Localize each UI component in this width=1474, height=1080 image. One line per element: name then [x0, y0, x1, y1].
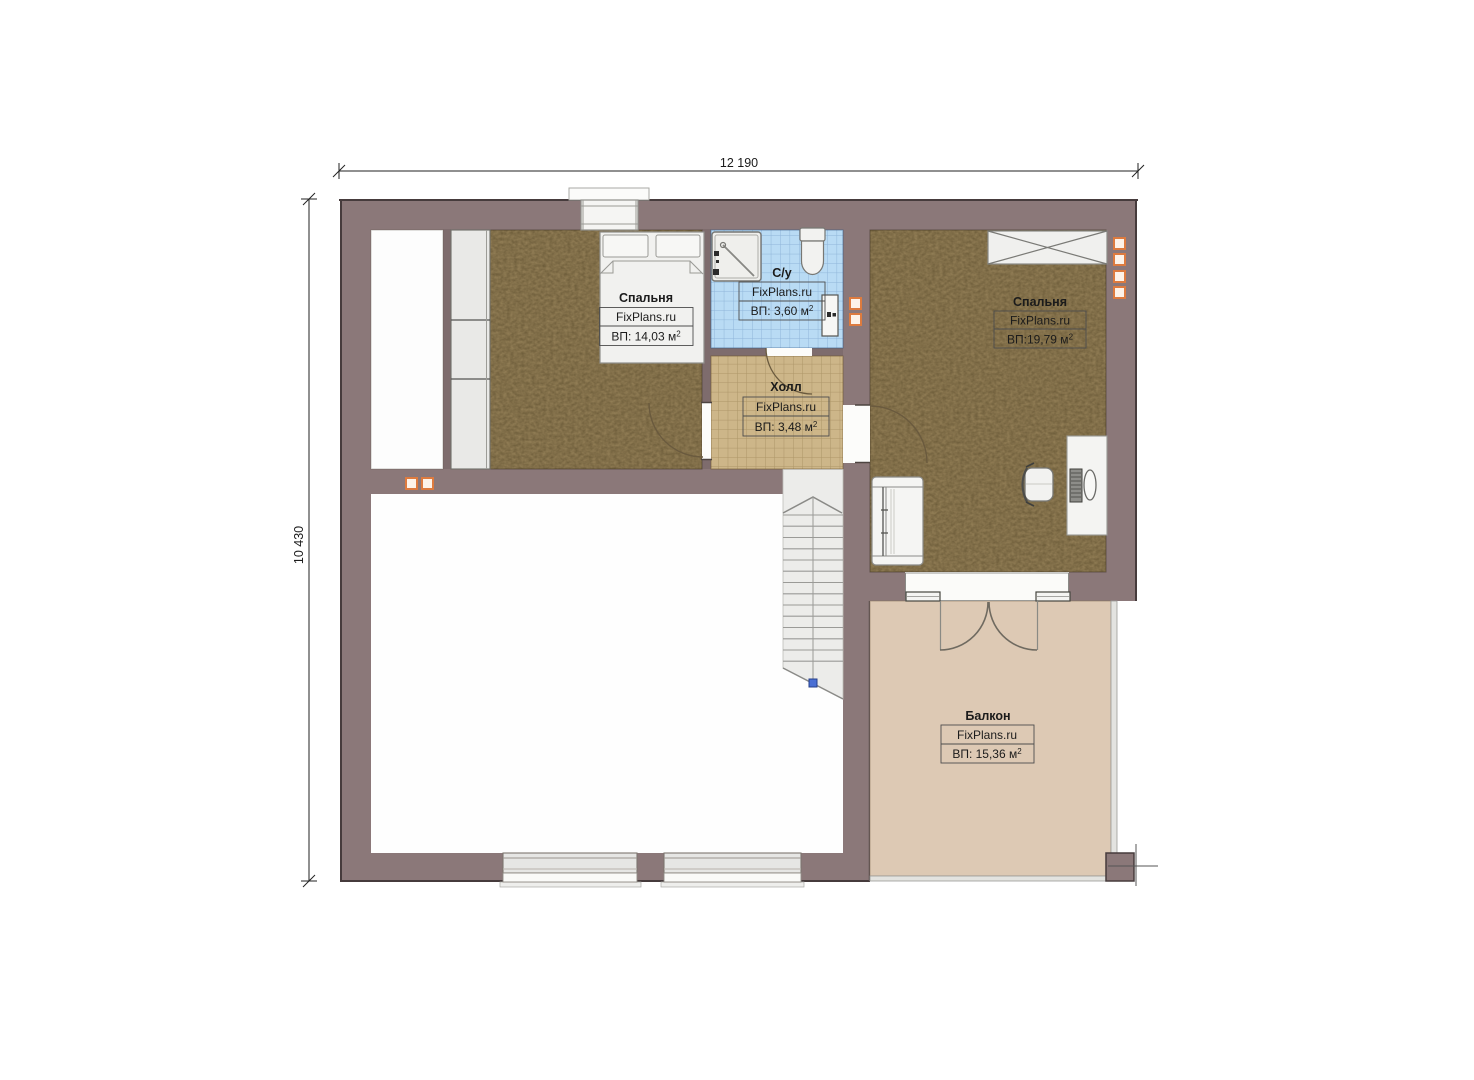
svg-text:Спальня: Спальня [619, 291, 673, 305]
svg-text:ВП: 15,36 м2: ВП: 15,36 м2 [952, 747, 1022, 761]
svg-text:ВП: 3,48 м2: ВП: 3,48 м2 [755, 420, 818, 434]
svg-text:FixPlans.ru: FixPlans.ru [752, 285, 812, 299]
svg-text:FixPlans.ru: FixPlans.ru [616, 310, 676, 324]
svg-text:FixPlans.ru: FixPlans.ru [957, 728, 1017, 742]
svg-text:10 430: 10 430 [292, 526, 306, 564]
svg-text:ВП: 3,60 м2: ВП: 3,60 м2 [751, 304, 814, 318]
svg-text:Холл: Холл [770, 380, 801, 394]
svg-text:ВП:19,79 м2: ВП:19,79 м2 [1007, 333, 1074, 347]
svg-text:12 190: 12 190 [720, 156, 758, 170]
svg-text:FixPlans.ru: FixPlans.ru [756, 400, 816, 414]
svg-text:ВП: 14,03 м2: ВП: 14,03 м2 [611, 330, 681, 344]
svg-text:Спальня: Спальня [1013, 295, 1067, 309]
svg-text:С/у: С/у [772, 266, 792, 280]
svg-text:FixPlans.ru: FixPlans.ru [1010, 314, 1070, 328]
svg-text:Балкон: Балкон [965, 709, 1010, 723]
